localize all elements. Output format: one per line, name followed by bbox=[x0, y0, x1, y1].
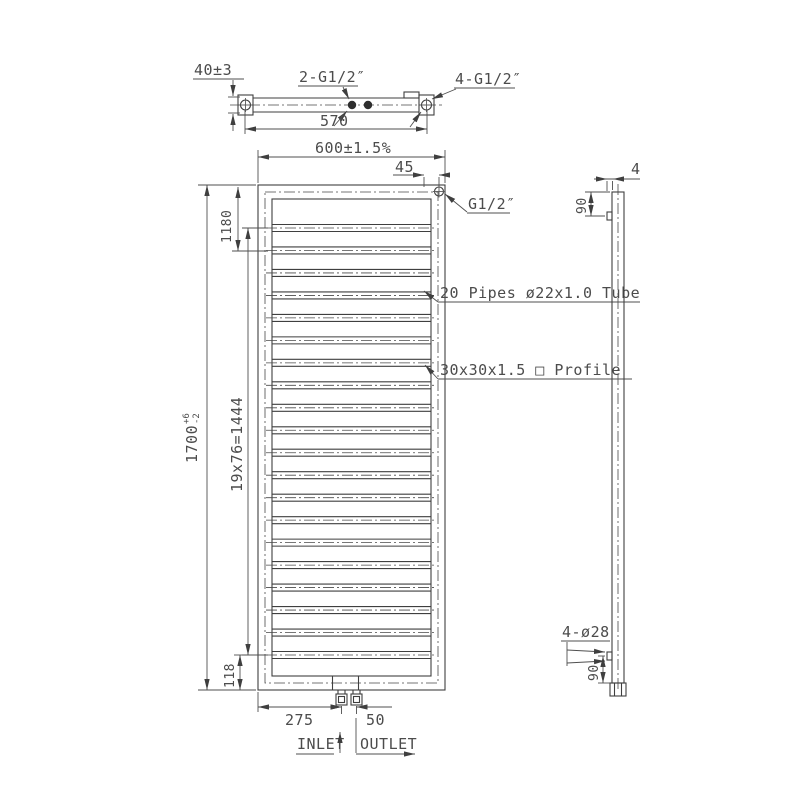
label-g12: G1/2″ bbox=[445, 194, 516, 213]
dim-4: 4 bbox=[594, 160, 641, 191]
center-connection-left bbox=[348, 101, 356, 109]
dim-45-label: 45 bbox=[395, 158, 414, 176]
dim-90-top-label: 90 bbox=[575, 197, 590, 214]
dim-pipe-pitch-label: 19x76=1444 bbox=[228, 397, 246, 492]
leader-2-g12-upper bbox=[343, 87, 349, 99]
label-g12-text: G1/2″ bbox=[468, 195, 516, 213]
right-connection-circle bbox=[420, 98, 434, 112]
frame-outer bbox=[258, 185, 445, 690]
dim-50-label: 50 bbox=[366, 711, 385, 729]
dim-45: 45 bbox=[393, 158, 449, 187]
frame-inner bbox=[272, 199, 431, 676]
dim-118: 118 bbox=[223, 655, 246, 690]
center-connection-right bbox=[364, 101, 372, 109]
front-frame bbox=[258, 185, 445, 690]
leader-holes-top bbox=[567, 650, 605, 652]
label-4-g12-text: 4-G1/2″ bbox=[455, 70, 522, 88]
dim-275: 275 bbox=[258, 692, 342, 729]
label-profile-text: 30x30x1.5 □ Profile bbox=[440, 361, 621, 379]
bottom-bracket-tab bbox=[607, 652, 612, 660]
dim-90-top: 90 bbox=[575, 192, 610, 216]
label-outlet-text: OUTLET bbox=[360, 735, 417, 753]
inlet-stub bbox=[336, 690, 347, 705]
label-2-g12-text: 2-G1/2″ bbox=[299, 68, 366, 86]
left-connection-circle bbox=[239, 98, 253, 112]
leader-4-g12-lower bbox=[410, 112, 421, 127]
dim-1700-label: 1700 bbox=[183, 425, 201, 463]
technical-drawing: 40±3 2-G1/2″ 4-G1/2″ 570 bbox=[0, 0, 800, 800]
dim-40-label: 40±3 bbox=[194, 61, 232, 79]
dim-4-label: 4 bbox=[631, 160, 641, 178]
dim-pipe-pitch: 19x76=1444 bbox=[228, 228, 268, 655]
dim-1180-label: 1180 bbox=[220, 210, 235, 243]
dim-90-bottom-label: 90 bbox=[587, 664, 602, 681]
dim-570-label: 570 bbox=[320, 112, 349, 130]
pipes bbox=[266, 225, 437, 659]
dim-275-label: 275 bbox=[285, 711, 314, 729]
frame-centerline bbox=[265, 192, 438, 683]
dim-50: 50 bbox=[331, 706, 392, 729]
leader-g12 bbox=[445, 194, 467, 212]
dim-600: 600±1.5% bbox=[258, 139, 445, 183]
dim-600-label: 600±1.5% bbox=[315, 139, 391, 157]
top-bracket-tab bbox=[607, 212, 612, 220]
top-connection bbox=[433, 186, 445, 198]
side-bar bbox=[607, 184, 626, 696]
dim-1700-tol-up: +6 bbox=[182, 413, 192, 424]
label-pipes-text: 20 Pipes ø22x1.0 Tube bbox=[440, 284, 640, 302]
label-holes-text: 4-ø28 bbox=[562, 623, 610, 641]
side-view: 4 90 4-ø28 90 bbox=[561, 160, 641, 696]
label-pipes: 20 Pipes ø22x1.0 Tube bbox=[424, 284, 640, 302]
dim-40: 40±3 bbox=[193, 61, 244, 131]
top-view: 40±3 2-G1/2″ 4-G1/2″ 570 bbox=[193, 61, 522, 134]
label-inlet: INLET bbox=[296, 732, 345, 754]
front-view: 600±1.5% 45 G1/2″ 1700 +6 -2 bbox=[182, 139, 640, 754]
dim-1180: 1180 bbox=[220, 187, 268, 251]
drawing-canvas: 40±3 2-G1/2″ 4-G1/2″ 570 bbox=[0, 0, 800, 800]
leader-4-g12-upper bbox=[432, 89, 456, 99]
label-profile: 30x30x1.5 □ Profile bbox=[425, 361, 632, 379]
dim-1700-tol-dn: -2 bbox=[192, 413, 202, 424]
leader-holes-bottom bbox=[567, 661, 605, 663]
label-inlet-text: INLET bbox=[297, 735, 345, 753]
outlet-stub bbox=[351, 690, 362, 705]
dim-118-label: 118 bbox=[223, 663, 238, 688]
dim-570: 570 bbox=[245, 110, 427, 134]
right-top-tab bbox=[404, 92, 419, 98]
